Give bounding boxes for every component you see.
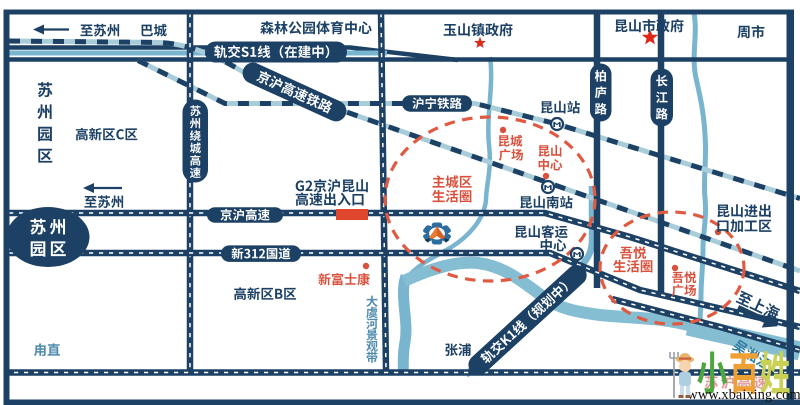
svg-text:www.xbaixing.com: www.xbaixing.com xyxy=(687,387,800,403)
